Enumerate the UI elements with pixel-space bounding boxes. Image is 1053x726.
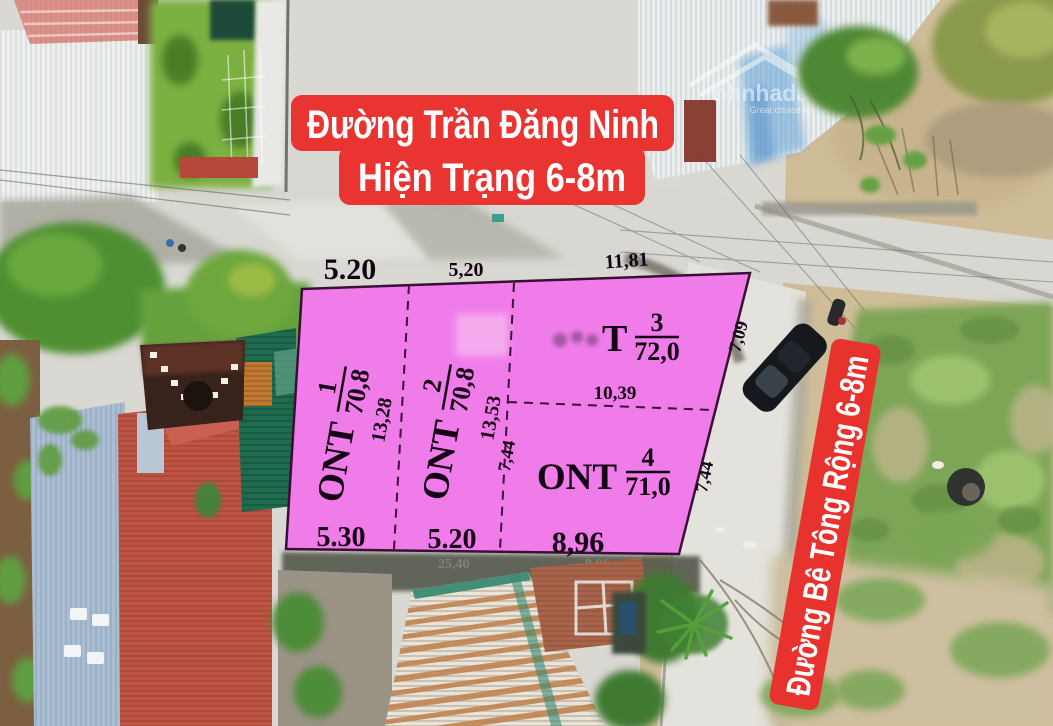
svg-text:71,0: 71,0 (625, 472, 671, 501)
svg-text:Đường Trần Đăng Ninh: Đường Trần Đăng Ninh (307, 103, 659, 147)
svg-text:3: 3 (651, 308, 664, 337)
svg-text:5,20: 5,20 (449, 259, 484, 281)
svg-text:10,39: 10,39 (594, 383, 637, 404)
svg-text:T: T (602, 318, 627, 360)
svg-text:72,0: 72,0 (634, 337, 680, 366)
svg-text:25,40: 25,40 (438, 557, 470, 572)
svg-text:8,96: 8,96 (552, 526, 605, 559)
svg-text:5.20: 5.20 (428, 524, 477, 555)
svg-text:4: 4 (642, 443, 655, 472)
svg-text:5.20: 5.20 (324, 253, 377, 286)
svg-text:Hiện Trạng 6-8m: Hiện Trạng 6-8m (358, 156, 626, 200)
svg-text:ONT: ONT (537, 457, 618, 498)
svg-text:11,81: 11,81 (604, 249, 649, 274)
svg-text:5.30: 5.30 (317, 522, 366, 553)
